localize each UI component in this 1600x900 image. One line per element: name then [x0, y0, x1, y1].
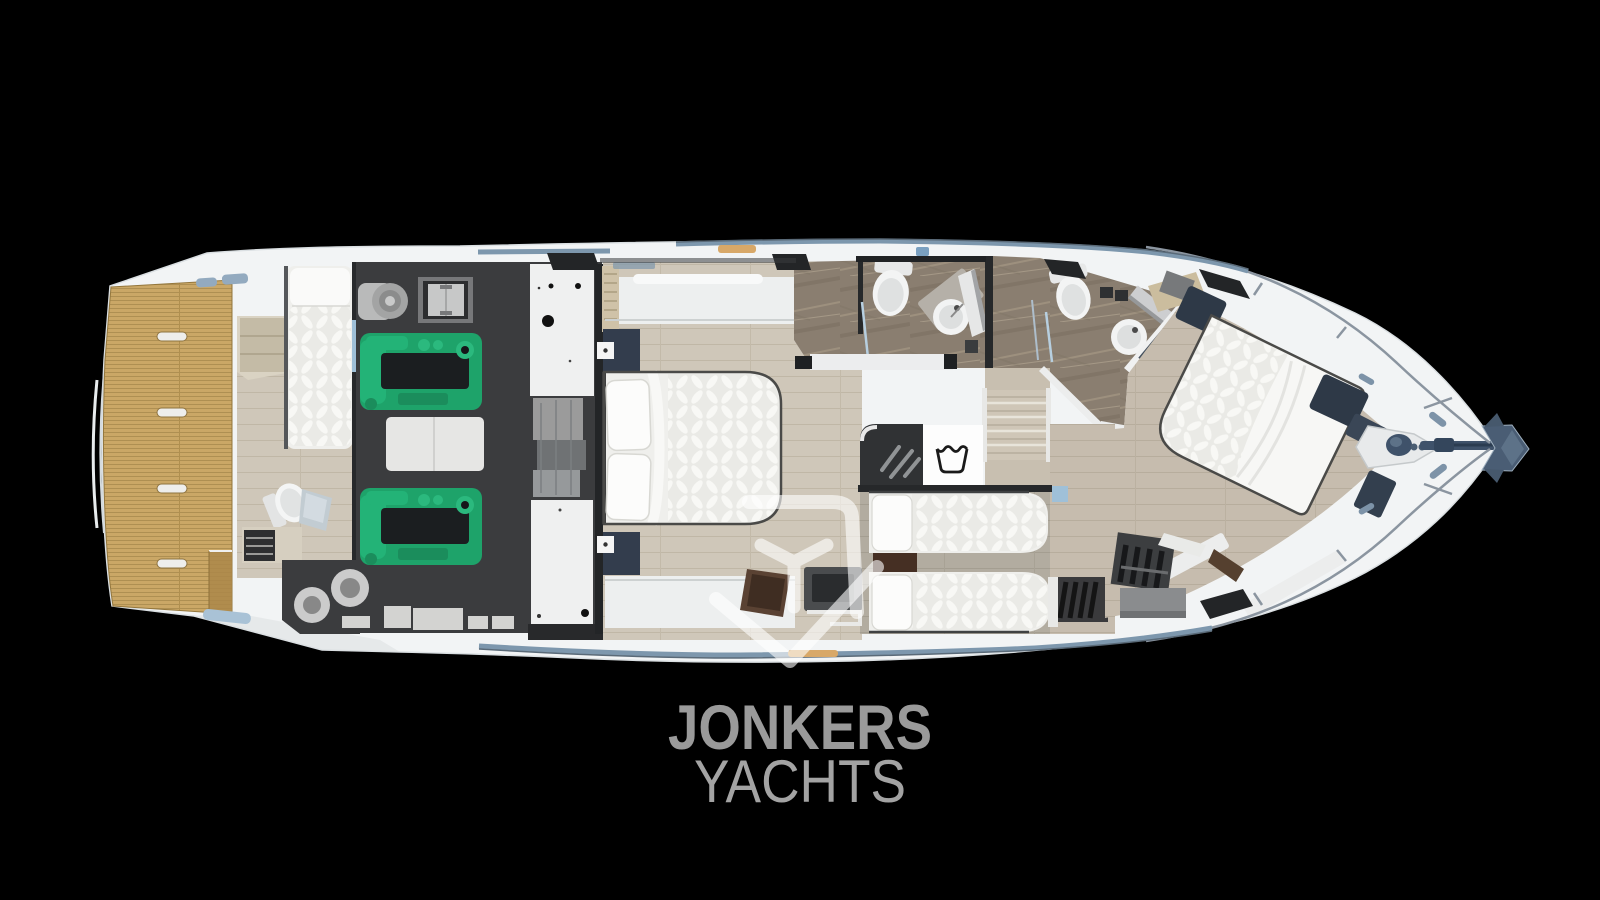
svg-text:YACHTS: YACHTS: [694, 748, 906, 815]
